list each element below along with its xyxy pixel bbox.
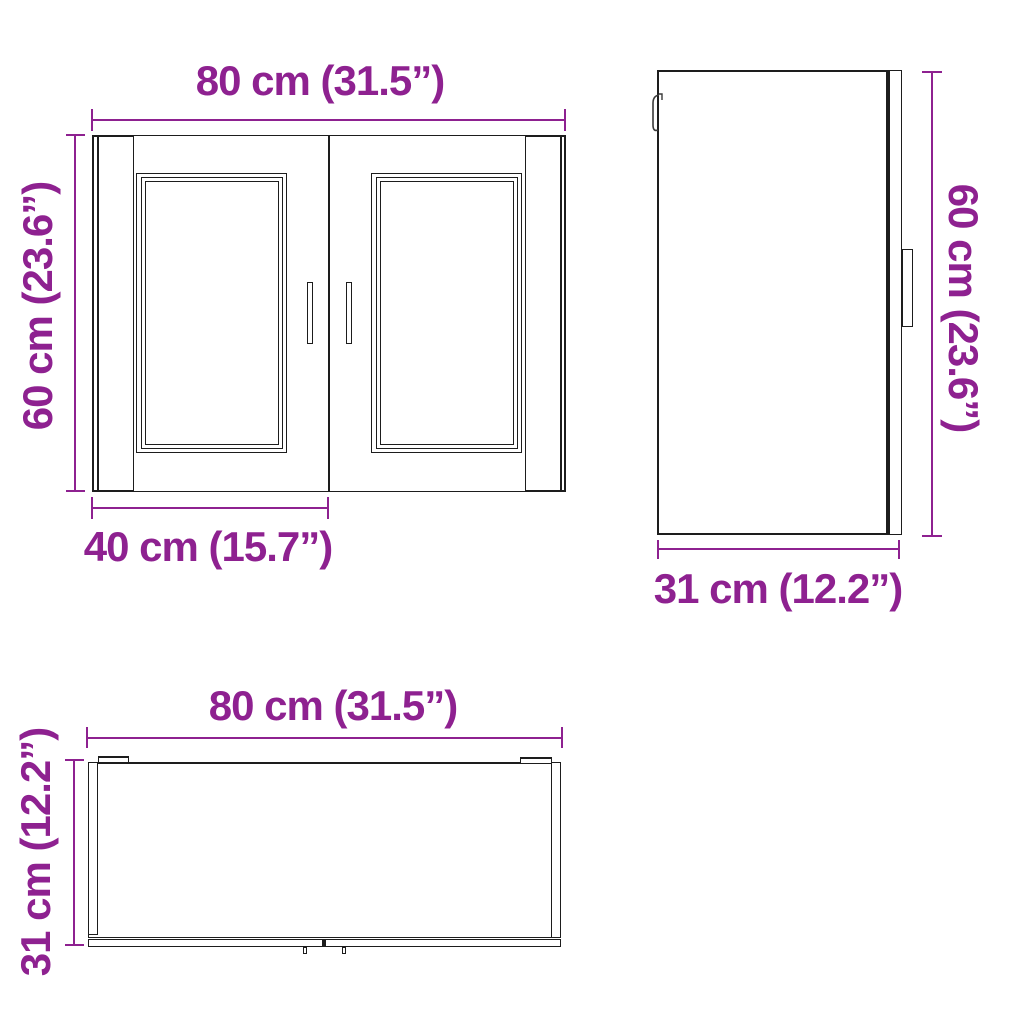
side-depth-tick-right [898, 540, 900, 559]
side-height-dimension-tick-top [922, 71, 942, 73]
top-right-door-handle [342, 947, 346, 954]
top-depth-tick-bottom [65, 944, 84, 946]
top-width-tick-right [561, 727, 563, 748]
top-left-hinge-bracket [98, 756, 129, 763]
top-depth-tick-top [65, 759, 84, 761]
side-depth-tick-left [657, 540, 659, 559]
top-width-tick-left [86, 727, 88, 748]
front-height-dimension-tick-bottom [66, 490, 85, 492]
top-door-gap [322, 939, 326, 947]
front-width-dimension-line [92, 119, 566, 121]
top-left-door-edge [88, 939, 323, 947]
front-width-dimension-tick-left [91, 109, 93, 131]
top-right-door-edge [325, 939, 561, 947]
front-width-dimension-tick-right [564, 109, 566, 131]
front-height-label: 60 cm (23.6”) [17, 182, 59, 430]
front-right-carcass-line [560, 136, 562, 491]
front-door-width-dimension-line [92, 507, 329, 509]
top-left-side-panel [88, 762, 98, 936]
front-left-door-panel [145, 181, 279, 445]
top-width-label: 80 cm (31.5”) [209, 685, 457, 727]
side-door-handle [902, 249, 913, 327]
top-right-hinge-bracket [520, 757, 552, 764]
top-width-dimension-line [87, 737, 562, 739]
front-left-door-handle [307, 282, 313, 344]
front-right-door-panel [380, 181, 514, 445]
side-door-strip [889, 70, 902, 535]
top-depth-dimension-line [73, 759, 75, 945]
front-width-label: 80 cm (31.5”) [196, 60, 444, 102]
front-right-door-handle [346, 282, 352, 344]
side-depth-label: 31 cm (12.2”) [654, 568, 902, 610]
side-depth-dimension-line [657, 548, 899, 550]
front-left-carcass-line [97, 136, 99, 491]
side-cabinet-outline [657, 70, 889, 535]
front-height-dimension-tick-top [66, 134, 85, 136]
dimension-diagram: 80 cm (31.5”) 60 cm (23.6”) 40 cm (15.7”… [0, 0, 1024, 1024]
top-cabinet-outline [88, 762, 561, 938]
side-height-dimension-line [931, 72, 933, 536]
front-height-dimension-line [74, 135, 76, 492]
front-door-width-tick-left [91, 497, 93, 519]
top-left-door-handle [303, 947, 307, 954]
top-depth-label: 31 cm (12.2”) [15, 728, 57, 976]
side-height-dimension-tick-bottom [922, 535, 942, 537]
top-right-side-panel [551, 762, 561, 938]
side-height-label: 60 cm (23.6”) [942, 184, 984, 432]
wall-hook-icon [648, 92, 664, 136]
front-door-width-tick-right [327, 497, 329, 519]
front-door-width-label: 40 cm (15.7”) [84, 526, 332, 568]
